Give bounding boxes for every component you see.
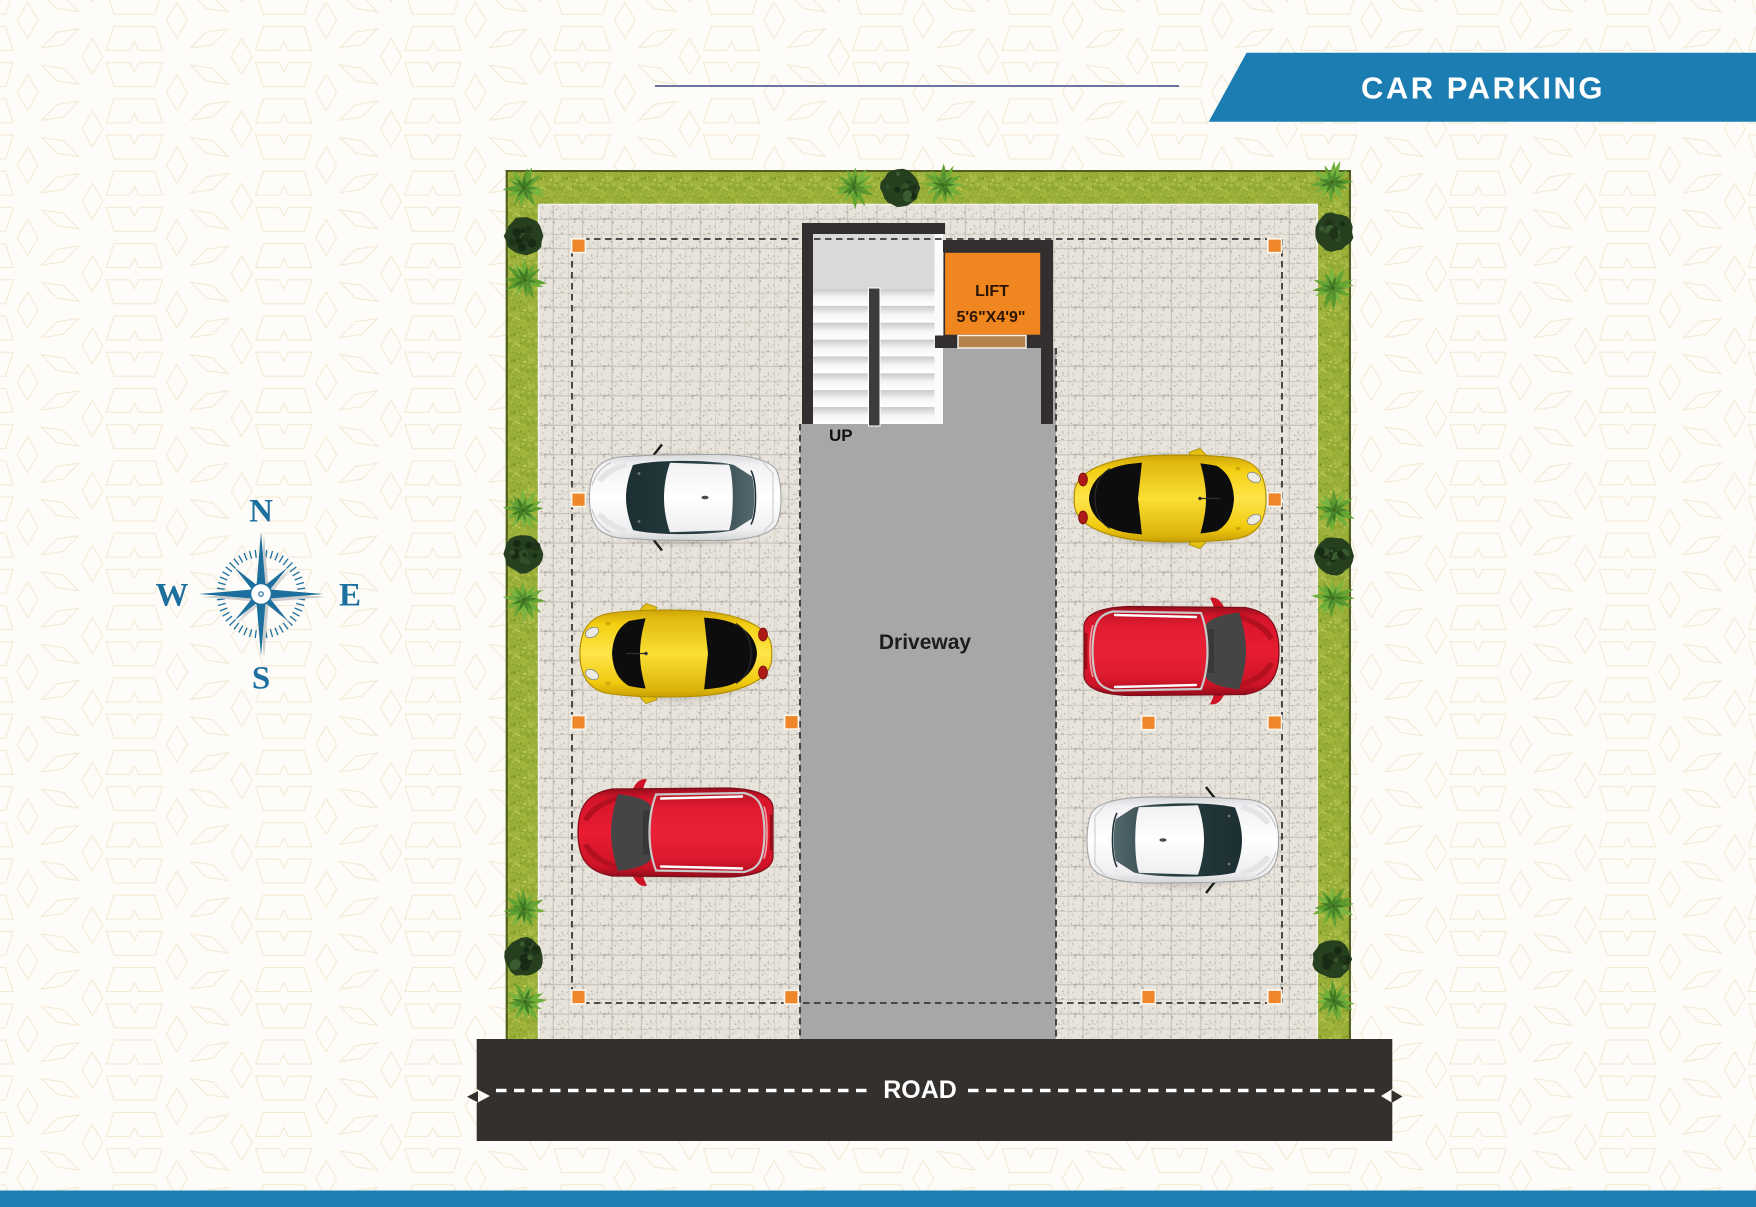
svg-text:UP: UP: [829, 426, 853, 445]
svg-text:N: N: [249, 494, 273, 530]
svg-text:5'6"X4'9": 5'6"X4'9": [956, 309, 1025, 326]
svg-text:E: E: [339, 578, 361, 614]
svg-text:W: W: [156, 578, 189, 614]
svg-text:CAR PARKING: CAR PARKING: [1361, 71, 1605, 106]
svg-text:LIFT: LIFT: [975, 283, 1009, 300]
svg-text:ROAD: ROAD: [883, 1076, 957, 1104]
svg-text:S: S: [252, 661, 270, 697]
svg-text:Driveway: Driveway: [879, 631, 972, 654]
